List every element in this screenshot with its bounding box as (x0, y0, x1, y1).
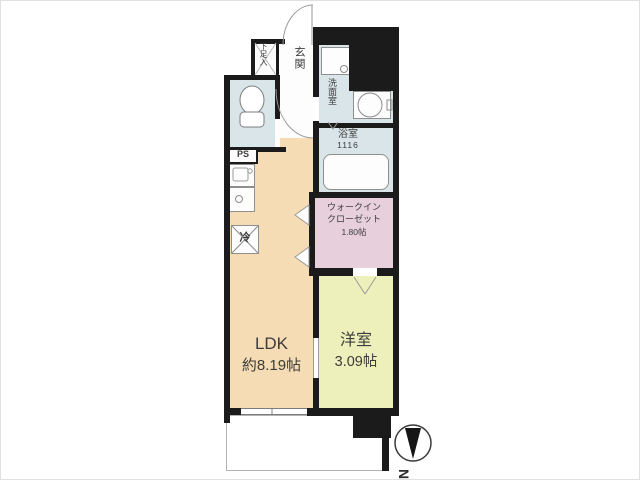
vanity-unit (353, 91, 391, 119)
walk-in-closet-size-label: 1.80帖 (315, 228, 393, 237)
kitchen-counter (229, 187, 255, 212)
entry-door-swing (283, 5, 313, 45)
wall-bathroom-top (313, 123, 399, 128)
wall-bottom-cap (230, 408, 241, 415)
bathtub (323, 154, 389, 190)
wall-closet-bottom-left (309, 268, 353, 276)
wall-toilet-right (275, 80, 280, 119)
ldk-label: LDK (230, 335, 313, 354)
toilet-room-floor (230, 80, 275, 147)
ldk-window (241, 408, 307, 415)
washing-machine-pan (321, 47, 351, 75)
wall-ldk-west-lower (313, 378, 319, 408)
wall-right-extension (382, 438, 389, 471)
compass-north-label: N (396, 469, 412, 479)
western-room-label: 洋室 (319, 332, 393, 350)
entrance-label: 玄関 (293, 46, 304, 70)
north-compass-icon: N (395, 425, 431, 479)
kitchen-sink (229, 164, 255, 187)
western-room-size-label: 3.09帖 (319, 355, 393, 371)
wall-closet-bottom-right (377, 268, 399, 276)
pipe-space-label: PS (228, 150, 258, 160)
wall-right (393, 27, 399, 416)
shoe-cabinet-label: 下足入 (259, 42, 267, 66)
bathroom-size-label: 1116 (319, 141, 377, 150)
bathroom-label: 浴室 (319, 129, 377, 140)
wall-bottom-block (353, 408, 391, 438)
wall-toilet-top (224, 75, 280, 80)
walk-in-closet-label-line2: クローゼット (315, 215, 393, 225)
wall-closet-top (309, 192, 399, 198)
wall-ldk-west-upper (313, 276, 319, 338)
wall-top-stub (251, 39, 255, 79)
wall-top (251, 39, 285, 44)
washroom-label: 洗面室 (327, 78, 336, 105)
walk-in-closet-label-line1: ウォークイン (315, 203, 393, 213)
refrigerator-label: 冷 (231, 232, 259, 244)
floorplan-image: N 玄関 下足入 洗面室 浴室 1116 ウォークイン クローゼット 1.80帖… (0, 0, 640, 480)
ldk-size-label: 約8.19帖 (224, 358, 319, 375)
wall-block-main (349, 27, 399, 91)
